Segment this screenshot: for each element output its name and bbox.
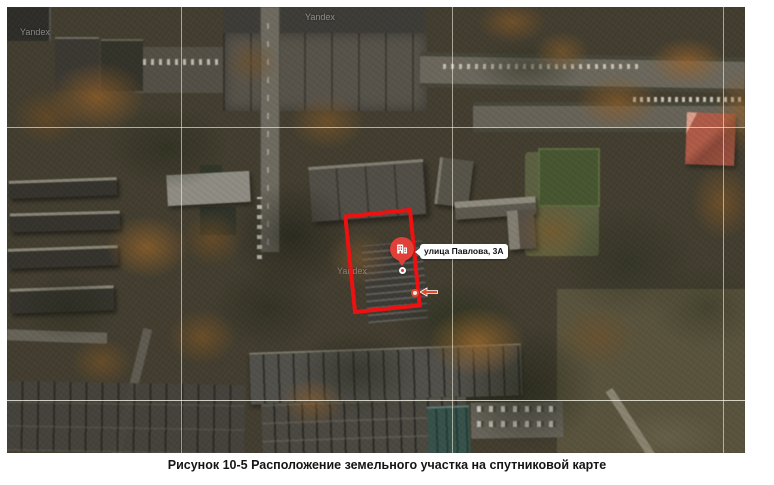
map-grid-line	[723, 7, 724, 453]
address-placemark	[390, 237, 414, 261]
point-ring-marker	[411, 289, 419, 297]
map-grid-line	[7, 127, 745, 128]
yandex-watermark: Yandex	[20, 27, 50, 37]
yandex-watermark: Yandex	[305, 12, 335, 22]
land-plot-outline	[343, 208, 422, 314]
figure-caption: Рисунок 10-5 Расположение земельного уча…	[0, 458, 774, 472]
map-grid-line	[181, 7, 182, 453]
document-page: Yandex Yandex Yandex	[0, 0, 774, 485]
map-grid-line	[7, 400, 745, 401]
satellite-map-image: Yandex Yandex Yandex	[7, 7, 745, 453]
map-grid-line	[452, 7, 453, 453]
address-label: улица Павлова, 3А	[420, 244, 508, 259]
marker-anchor-dot	[399, 267, 406, 274]
arrow-left-icon	[420, 287, 438, 297]
